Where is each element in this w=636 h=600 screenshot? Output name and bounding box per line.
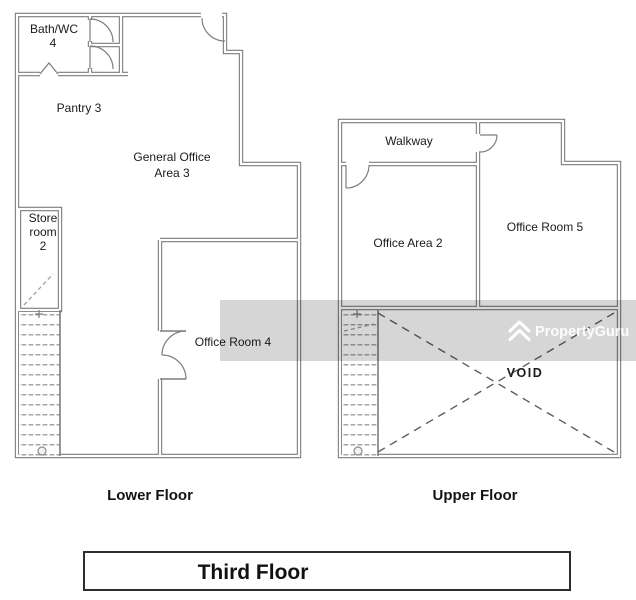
- room-label-general-office-line1: General Office: [133, 150, 210, 164]
- room-label-office-area-2: Office Area 2: [373, 236, 442, 250]
- stair-pole-circle: [354, 447, 362, 455]
- room-label-store-line2: room: [29, 225, 56, 239]
- room-label-office-room-5: Office Room 5: [507, 220, 584, 234]
- upper-floor-caption: Upper Floor: [433, 487, 518, 504]
- stair-pole-circle: [38, 447, 46, 455]
- floor-plan-page: Bath/WC 4 Pantry 3 General Office Area 3…: [0, 0, 636, 600]
- title-box: [84, 552, 570, 590]
- room-label-general-office-line2: Area 3: [154, 166, 190, 180]
- lower-floor-caption: Lower Floor: [107, 487, 193, 504]
- room-label-walkway: Walkway: [385, 134, 433, 148]
- lower-floor-room-labels: Bath/WC 4 Pantry 3 General Office Area 3…: [29, 22, 272, 349]
- floor-plan-canvas: Bath/WC 4 Pantry 3 General Office Area 3…: [0, 0, 636, 600]
- room-label-void: VOID: [507, 366, 544, 380]
- title-block: Third Floor: [84, 552, 570, 590]
- watermark: PropertyGuru: [220, 300, 636, 361]
- room-label-store-line1: Store: [29, 211, 58, 225]
- room-label-bathwc-line1: Bath/WC: [30, 22, 78, 36]
- room-label-store-line3: 2: [40, 239, 47, 253]
- entrance-door-opening: [201, 11, 222, 19]
- page-title: Third Floor: [198, 561, 309, 584]
- room-label-pantry: Pantry 3: [57, 101, 102, 115]
- room-label-bathwc-line2: 4: [50, 36, 57, 50]
- upper-floor-plan-walls: [340, 121, 619, 456]
- watermark-brand-text: PropertyGuru: [535, 324, 629, 340]
- wall-inner-lines: [17, 15, 619, 456]
- lower-staircase: [19, 274, 60, 456]
- stair-direction-line: [24, 274, 53, 305]
